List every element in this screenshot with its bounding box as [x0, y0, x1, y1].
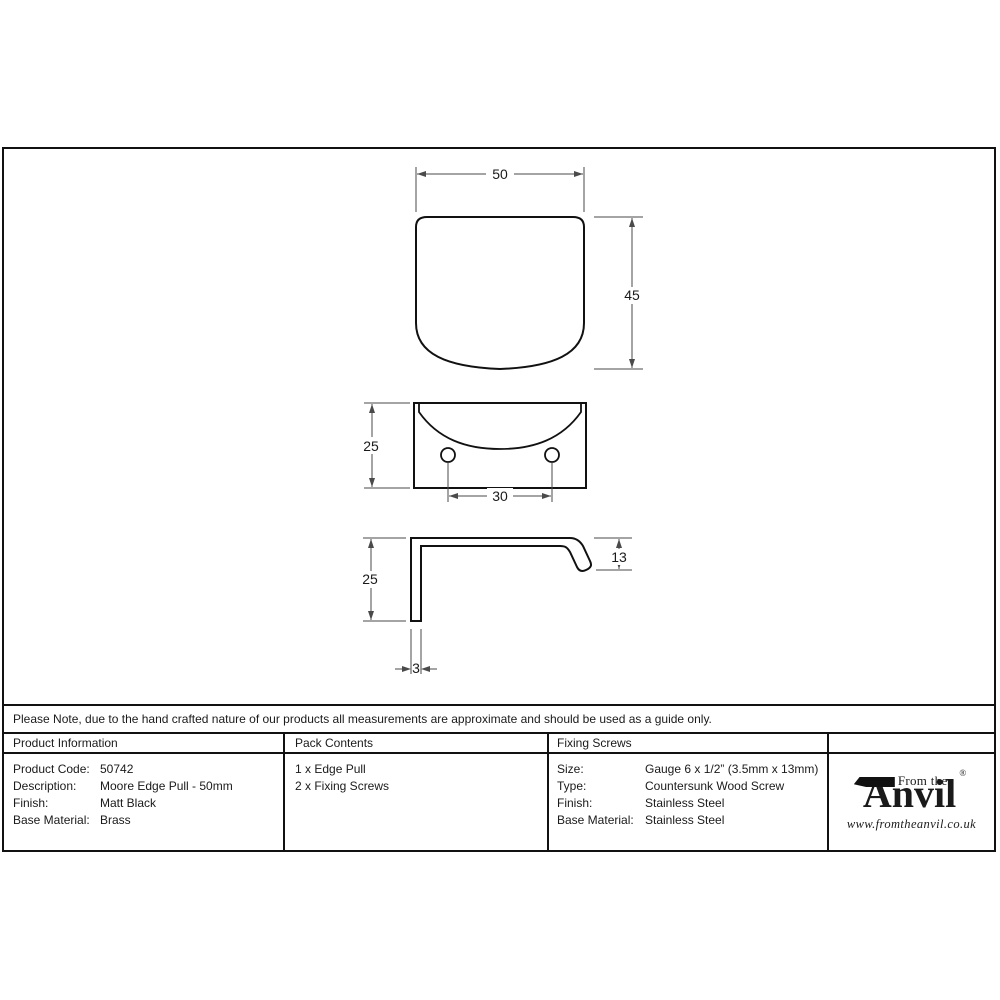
- pack-line: 2 x Fixing Screws: [295, 778, 547, 795]
- from-the-anvil-logo: Anvil From the ® www.fromtheanvil.co.uk: [829, 754, 994, 850]
- field-value: Stainless Steel: [645, 795, 724, 812]
- table-row: Description: Moore Edge Pull - 50mm: [13, 778, 283, 795]
- table-body-row: Product Code: 50742 Description: Moore E…: [4, 752, 994, 850]
- field-value: 50742: [100, 761, 133, 778]
- header-pack-contents: Pack Contents: [285, 734, 549, 752]
- table-row: Finish: Stainless Steel: [557, 795, 827, 812]
- pack-line: 1 x Edge Pull: [295, 761, 547, 778]
- field-value: Gauge 6 x 1/2” (3.5mm x 13mm): [645, 761, 818, 778]
- logo-website: www.fromtheanvil.co.uk: [847, 817, 976, 832]
- field-label: Type:: [557, 778, 645, 795]
- field-label: Finish:: [557, 795, 645, 812]
- field-value: Stainless Steel: [645, 812, 724, 829]
- table-row: Base Material: Stainless Steel: [557, 812, 827, 829]
- table-header-row: Product Information Pack Contents Fixing…: [4, 732, 994, 752]
- field-label: Base Material:: [13, 812, 100, 829]
- field-value: Countersunk Wood Screw: [645, 778, 784, 795]
- field-value: Moore Edge Pull - 50mm: [100, 778, 233, 795]
- field-label: Finish:: [13, 795, 100, 812]
- field-value: Brass: [100, 812, 131, 829]
- table-row: Type: Countersunk Wood Screw: [557, 778, 827, 795]
- field-value: Matt Black: [100, 795, 156, 812]
- pack-contents-cell: 1 x Edge Pull 2 x Fixing Screws: [285, 754, 549, 850]
- drawing-area: [4, 149, 994, 704]
- fixing-screws-cell: Size: Gauge 6 x 1/2” (3.5mm x 13mm) Type…: [549, 754, 829, 850]
- anvil-a-icon: A: [863, 774, 892, 814]
- registered-mark: ®: [959, 769, 966, 778]
- table-row: Base Material: Brass: [13, 812, 283, 829]
- note-bar: Please Note, due to the hand crafted nat…: [4, 704, 994, 732]
- logo-wordmark: Anvil From the ®: [857, 772, 966, 814]
- field-label: Product Code:: [13, 761, 100, 778]
- header-product-information: Product Information: [4, 734, 285, 752]
- note-text: Please Note, due to the hand crafted nat…: [13, 712, 712, 726]
- anvil-horn-icon: [854, 777, 895, 787]
- logo-from-the: From the: [898, 774, 948, 787]
- product-information-cell: Product Code: 50742 Description: Moore E…: [4, 754, 285, 850]
- spec-sheet-frame: Please Note, due to the hand crafted nat…: [2, 147, 996, 852]
- header-fixing-screws: Fixing Screws: [549, 734, 829, 752]
- field-label: Base Material:: [557, 812, 645, 829]
- header-logo-cell: [829, 734, 994, 752]
- table-row: Size: Gauge 6 x 1/2” (3.5mm x 13mm): [557, 761, 827, 778]
- brand-cell: Anvil From the ® www.fromtheanvil.co.uk: [829, 754, 994, 850]
- table-row: Finish: Matt Black: [13, 795, 283, 812]
- table-row: Product Code: 50742: [13, 761, 283, 778]
- spec-sheet-page: Please Note, due to the hand crafted nat…: [0, 0, 1000, 1000]
- field-label: Description:: [13, 778, 100, 795]
- field-label: Size:: [557, 761, 645, 778]
